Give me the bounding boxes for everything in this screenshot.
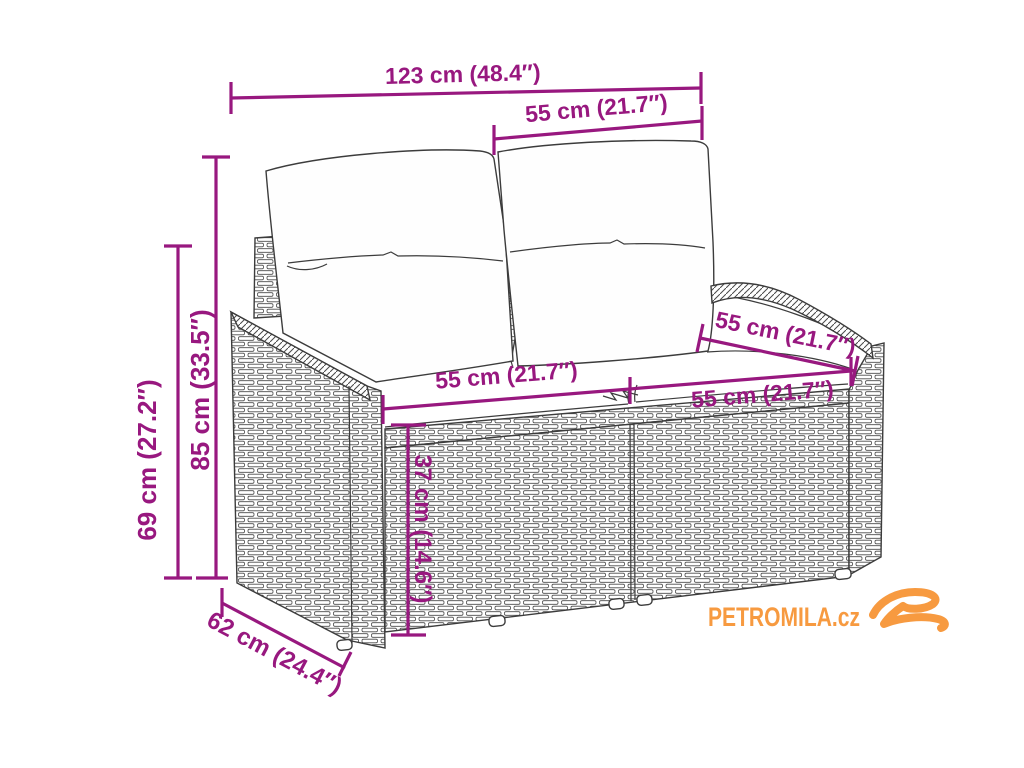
dimension-label-total-width: 123 cm (48.4″) <box>385 59 541 89</box>
seat-gap-wrinkles <box>603 391 638 400</box>
dimension-label-total-height: 85 cm (33.5″) <box>185 309 215 470</box>
dimension-seat-depth: 55 cm (21.7″) <box>697 306 858 386</box>
dimension-label-seat-depth: 55 cm (21.7″) <box>713 306 858 360</box>
brush-swirl-icon <box>873 592 945 628</box>
foot <box>609 598 625 610</box>
foot <box>637 594 653 606</box>
product-dimension-diagram: 123 cm (48.4″) 55 cm (21.7″) 85 cm (33.5… <box>0 0 1024 768</box>
dimension-total-height: 85 cm (33.5″) <box>185 157 230 578</box>
foot <box>489 615 506 627</box>
back-cushion-right <box>498 140 714 366</box>
diagram-canvas: 123 cm (48.4″) 55 cm (21.7″) 85 cm (33.5… <box>0 0 1024 768</box>
foot <box>835 568 852 580</box>
dimension-label-seat-height: 37 cm (14.6″) <box>409 455 436 604</box>
watermark-text: PETROMILA.cz <box>708 602 860 632</box>
dimension-back-height: 69 cm (27.2″) <box>132 246 192 578</box>
dimension-label-back-height: 69 cm (27.2″) <box>132 379 162 540</box>
back-cushion-left <box>266 150 513 382</box>
dimension-label-back-cushion-width: 55 cm (21.7″) <box>524 89 668 127</box>
watermark: PETROMILA.cz <box>708 592 945 632</box>
foot <box>337 639 353 651</box>
